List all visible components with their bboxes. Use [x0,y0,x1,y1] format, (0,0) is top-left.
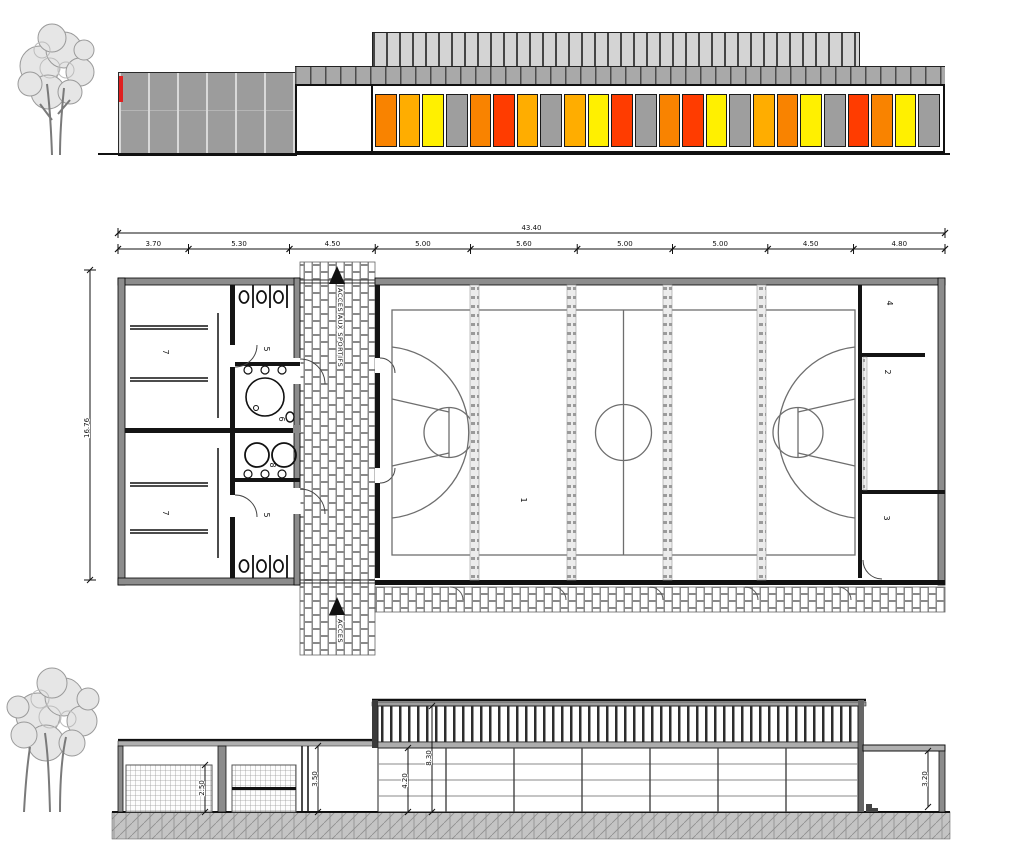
plan-segment-dimension-2: 5.30 [231,240,247,248]
room-label-changing-top: 7 [161,349,170,354]
facade-panel-8-gray [540,94,562,147]
section-left-wing: 2.50 3.50 [118,740,375,815]
elevation-concrete-wall [118,72,297,156]
trees-bottom-left [7,668,99,812]
dim-label-left-wall: 3.50 [311,771,319,787]
room-label-court: 1 [519,497,528,502]
room-label-wc-bottom: 5 [262,512,271,517]
facade-panel-18-orange [777,94,799,147]
hall-left-wall [375,285,380,578]
floor-plan: 1 2 3 4 5 5 6 7 7 8 ACCES AUX SPORTIFS A… [80,258,960,665]
dim-label-left-inner: 2.50 [198,780,206,796]
section-annex: 3.20 [863,745,945,812]
facade-panel-21-red [848,94,870,147]
plan-height-label: 16.76 [83,417,91,438]
plan-total-dimension: 43.40 [521,224,541,232]
locker-block [118,278,325,585]
facade-panel-20-gray [824,94,846,147]
elevation-roof-clerestory [372,32,860,68]
plan-segment-dimension-4: 5.00 [415,240,431,248]
dim-label-annex: 3.20 [921,771,929,787]
facade-panel-2-amber [399,94,421,147]
dim-label-hall-low: 4.20 [401,773,409,789]
room-label-storage: 2 [883,369,892,374]
facade-panel-23-yellow [895,94,917,147]
access-top-label: ACCES AUX SPORTIFS [336,288,344,367]
facade-panel-13-orange [659,94,681,147]
plan-segment-dimension-5: 5.60 [516,240,532,248]
elevation-facade-band [295,84,945,153]
tree-top-left [0,8,115,158]
door-gap [294,358,301,384]
room-label-storage-2: 3 [882,515,891,520]
facade-panel-14-red [682,94,704,147]
plan-segment-dimension-6: 5.00 [617,240,633,248]
facade-panel-15-yellow [706,94,728,147]
facade-panel-4-gray [446,94,468,147]
section-hall: 4.20 8.30 [372,700,866,815]
plan-segment-dimension-8: 4.50 [803,240,819,248]
facade-panel-24-gray [918,94,940,147]
facade-bay-divider [371,86,373,151]
elevation-red-accent [119,76,123,102]
facade-panel-5-orange [470,94,492,147]
door-gap [294,488,301,514]
facade-panel-10-yellow [588,94,610,147]
plan-segment-dimension-9: 4.80 [891,240,907,248]
room-label-washbasins: 8 [268,462,277,467]
sports-hall: 1 2 3 4 [300,278,945,600]
plan-segment-dimension-3: 4.50 [325,240,341,248]
facade-panels [375,94,940,147]
facade-panel-3-yellow [422,94,444,147]
facade-panel-17-amber [753,94,775,147]
facade-panel-22-orange [871,94,893,147]
facade-panel-12-gray [635,94,657,147]
plan-height-dimension: 16.76 [83,267,96,583]
facade-panel-16-gray [729,94,751,147]
dim-annex: 3.20 [921,748,931,810]
facade-panel-6-red [493,94,515,147]
architectural-drawing: 43.403.705.304.505.005.605.005.004.504.8… [0,0,1024,844]
room-label-shower: 6 [277,416,286,421]
facade-panel-9-amber [564,94,586,147]
curtain-wall [378,748,858,812]
facade-panel-11-red [611,94,633,147]
facade-panel-1-orange [375,94,397,147]
dim-left-wall: 3.50 [311,743,321,815]
plan-segment-dimension-7: 5.00 [712,240,728,248]
column-marker [293,425,301,433]
room-label-wc-top: 5 [262,346,271,351]
section-ground [112,812,950,839]
room-label-top-right: 4 [885,300,894,305]
access-bottom-label: ACCES [336,619,344,643]
plan-segment-dimension-1: 3.70 [145,240,161,248]
room-label-changing-bottom: 7 [161,510,170,515]
section-elevation: 2.50 3.50 4.20 [0,655,1024,844]
plan-dimension-ruler: 43.403.705.304.505.005.605.005.004.504.8… [80,220,960,258]
elevation-ground-line [98,153,950,155]
facade-panel-19-yellow [800,94,822,147]
dim-label-hall-high: 8.30 [425,750,433,766]
facade-panel-7-amber [517,94,539,147]
